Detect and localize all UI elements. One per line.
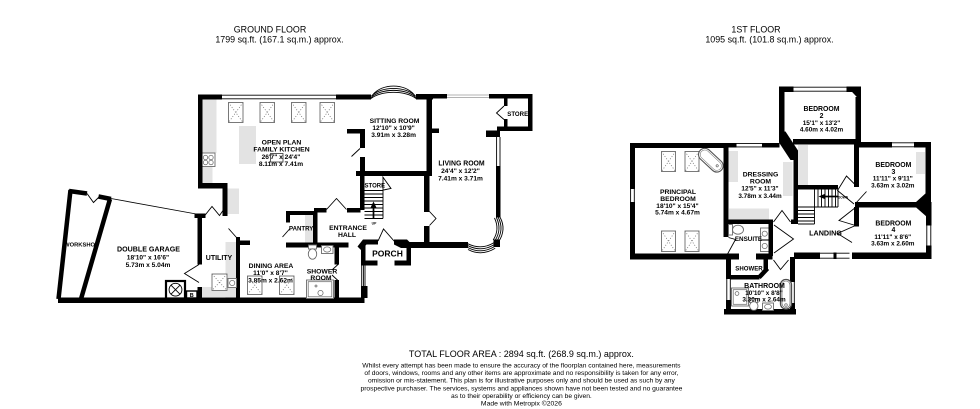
svg-text:3.85m x 2.62m: 3.85m x 2.62m — [248, 277, 293, 284]
svg-text:ENSUITE: ENSUITE — [735, 236, 762, 243]
svg-text:DOUBLE GARAGE: DOUBLE GARAGE — [117, 246, 180, 254]
svg-text:SHOWER: SHOWER — [735, 266, 763, 273]
svg-text:3.78m x 3.44m: 3.78m x 3.44m — [738, 193, 782, 200]
svg-text:Made with Metropix ©2026: Made with Metropix ©2026 — [481, 400, 562, 408]
svg-text:STORE: STORE — [507, 111, 528, 118]
svg-text:ENTRANCE: ENTRANCE — [329, 225, 367, 232]
svg-text:7.41m x 3.71m: 7.41m x 3.71m — [438, 176, 483, 183]
svg-text:ROOM: ROOM — [310, 275, 331, 282]
svg-text:DRESSING: DRESSING — [743, 172, 779, 179]
svg-text:FAMILY KITCHEN: FAMILY KITCHEN — [253, 147, 309, 154]
svg-text:DINING AREA: DINING AREA — [249, 263, 294, 270]
svg-text:26'7" x 24'4": 26'7" x 24'4" — [262, 154, 301, 161]
svg-text:Whilst every attempt has been: Whilst every attempt has been made to en… — [362, 363, 681, 370]
svg-text:11'0" x 8'7": 11'0" x 8'7" — [253, 270, 288, 277]
svg-text:UP: UP — [372, 222, 377, 226]
svg-text:1799 sq.ft. (167.1 sq.m.) appr: 1799 sq.ft. (167.1 sq.m.) approx. — [215, 35, 343, 45]
svg-text:PORCH: PORCH — [372, 248, 403, 258]
svg-text:1095 sq.ft. (101.8 sq.m.) appr: 1095 sq.ft. (101.8 sq.m.) approx. — [705, 35, 833, 45]
svg-text:3.91m x 3.28m: 3.91m x 3.28m — [371, 132, 416, 139]
svg-text:SITTING ROOM: SITTING ROOM — [370, 118, 420, 125]
svg-text:WORKSHOP: WORKSHOP — [64, 243, 99, 249]
svg-text:prospective purchaser. The ser: prospective purchaser. The services, sys… — [360, 385, 682, 392]
svg-text:OPEN PLAN: OPEN PLAN — [262, 140, 302, 147]
svg-text:8.11m x 7.41m: 8.11m x 7.41m — [259, 161, 303, 168]
svg-text:3.63m x 3.02m: 3.63m x 3.02m — [871, 182, 915, 189]
svg-text:B: B — [190, 293, 194, 299]
svg-text:PRINCIPAL: PRINCIPAL — [660, 189, 696, 196]
svg-text:omission or mis-statement. Thi: omission or mis-statement. This plan is … — [368, 378, 676, 385]
svg-text:STORE: STORE — [365, 184, 386, 190]
svg-text:PANTRY: PANTRY — [289, 226, 313, 233]
svg-text:3.63m x 2.60m: 3.63m x 2.60m — [871, 241, 915, 248]
svg-text:4.60m x 4.02m: 4.60m x 4.02m — [800, 127, 844, 134]
svg-text:18'10" x 16'6": 18'10" x 16'6" — [127, 255, 169, 262]
svg-text:3.30m x 2.64m: 3.30m x 2.64m — [742, 297, 786, 304]
svg-text:LANDING: LANDING — [809, 228, 842, 237]
svg-text:UTILITY: UTILITY — [206, 255, 233, 262]
svg-text:5.73m x 5.04m: 5.73m x 5.04m — [126, 262, 171, 269]
svg-text:ROOM: ROOM — [750, 179, 771, 186]
svg-text:1ST FLOOR: 1ST FLOOR — [731, 25, 780, 35]
svg-text:12'5" x 11'3": 12'5" x 11'3" — [741, 186, 778, 193]
svg-text:LIVING ROOM: LIVING ROOM — [438, 161, 485, 168]
svg-text:HALL: HALL — [338, 232, 356, 239]
svg-text:as to their operability or eff: as to their operability or efficiency ca… — [451, 393, 592, 400]
svg-text:GROUND FLOOR: GROUND FLOOR — [234, 25, 306, 35]
svg-text:BEDROOM: BEDROOM — [804, 106, 840, 113]
svg-text:24'4" x 12'2": 24'4" x 12'2" — [441, 168, 480, 175]
svg-text:5.74m x 4.67m: 5.74m x 4.67m — [655, 210, 700, 217]
svg-text:of doors, windows, rooms and a: of doors, windows, rooms and any other i… — [364, 370, 678, 377]
svg-text:TOTAL FLOOR AREA : 2894 sq.ft.: TOTAL FLOOR AREA : 2894 sq.ft. (268.9 sq… — [409, 349, 634, 359]
svg-text:12'10" x 10'9": 12'10" x 10'9" — [372, 125, 414, 132]
